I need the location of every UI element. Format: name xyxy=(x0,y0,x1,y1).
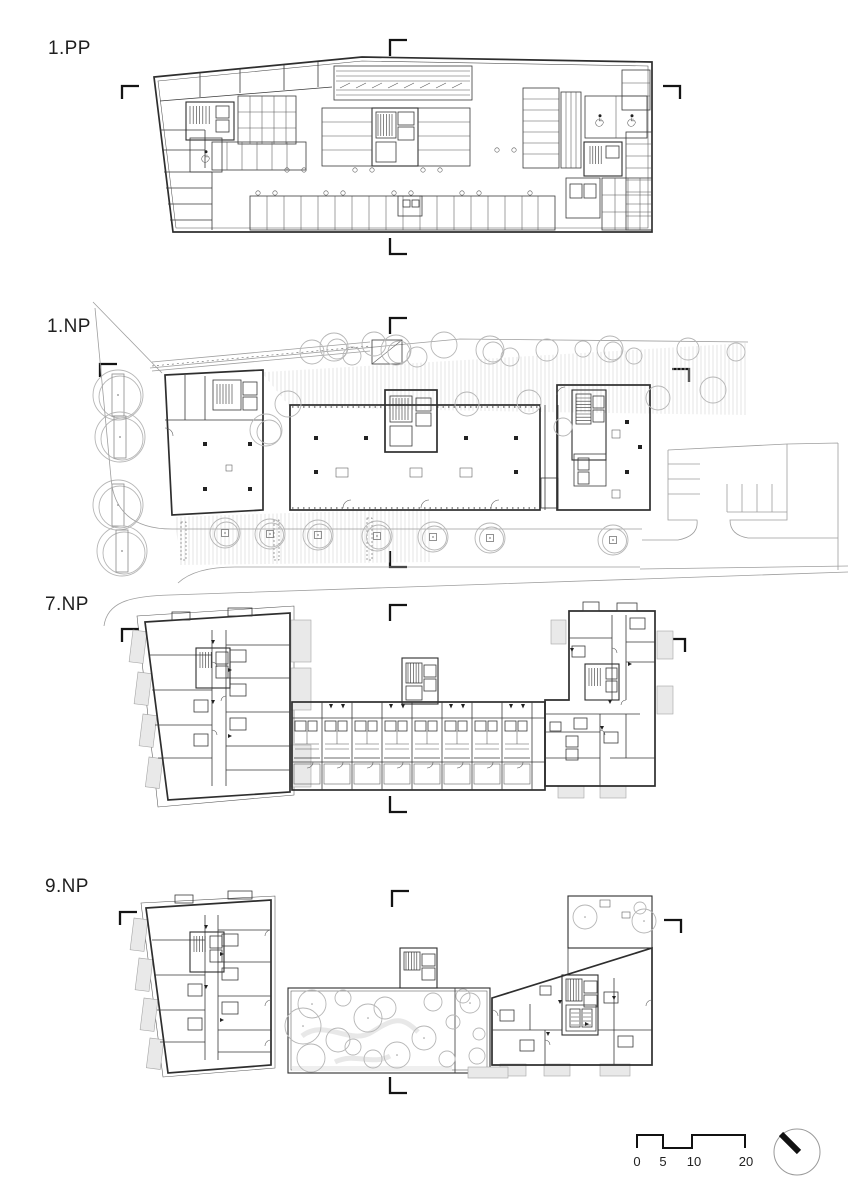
elevator-core xyxy=(566,178,600,218)
stair-core xyxy=(372,108,418,166)
entry-ramp xyxy=(152,342,370,371)
parking-stalls xyxy=(212,142,306,170)
section-marker-right xyxy=(664,920,681,933)
floor-plan-1np xyxy=(93,302,848,626)
plan-sheet: 1.PP 1.NP 7.NP 9.NP xyxy=(0,0,848,1200)
section-marker-bottom xyxy=(390,1077,407,1093)
elevator-icon xyxy=(424,679,436,691)
right-tower xyxy=(468,896,656,1078)
elevator-icon xyxy=(570,184,582,198)
parking-lot xyxy=(640,443,848,570)
north-arrow-icon xyxy=(774,1129,820,1175)
elevator-icon xyxy=(422,968,435,980)
drawing-canvas: 0 5 10 20 xyxy=(0,0,848,1200)
left-tower xyxy=(130,891,275,1077)
tree-row xyxy=(93,370,147,576)
section-marker-top xyxy=(392,891,409,907)
section-marker-top xyxy=(390,605,407,621)
elevator-icon xyxy=(398,112,414,125)
elevator-icon xyxy=(584,184,596,198)
stair-core xyxy=(196,648,230,688)
elevator-icon xyxy=(584,981,597,993)
property-line xyxy=(93,302,162,373)
column-grid xyxy=(256,148,532,195)
stair-core xyxy=(186,102,234,140)
wheelchair-icon xyxy=(596,114,604,126)
elevator-icon xyxy=(210,950,222,962)
elevator-icon xyxy=(566,736,578,747)
scale-bar: 0 5 10 20 xyxy=(633,1135,753,1169)
stair-core xyxy=(400,948,437,988)
elevator-icon xyxy=(216,120,229,132)
elevator-icon xyxy=(606,668,617,679)
elevator-icon xyxy=(424,665,436,677)
elevator-icon xyxy=(606,146,619,158)
wheelchair-icon xyxy=(202,150,210,162)
balcony xyxy=(130,918,164,1069)
floor-plan-9np xyxy=(120,891,681,1093)
elevator-icon xyxy=(416,413,431,426)
balcony xyxy=(129,630,163,788)
section-marker-right xyxy=(663,86,680,99)
elevator-icon xyxy=(422,954,435,966)
street-edge xyxy=(178,567,640,583)
storage-cells xyxy=(523,70,652,230)
wheelchair-icon xyxy=(628,114,636,126)
stair-core xyxy=(562,975,598,1035)
elevator-icon xyxy=(210,936,222,948)
elevator-icon xyxy=(216,106,229,118)
scale-tick-0: 0 xyxy=(633,1154,640,1169)
scale-tick-10: 10 xyxy=(687,1154,701,1169)
garage-ramp xyxy=(334,66,472,100)
left-tower xyxy=(129,606,311,807)
stair-core xyxy=(190,932,224,972)
floor-plan-7np xyxy=(122,602,685,812)
floor-plan-1pp xyxy=(122,40,680,254)
elevator-icon xyxy=(243,382,257,395)
section-marker-top xyxy=(390,318,407,334)
elevator-icon xyxy=(606,681,617,692)
storage-cells xyxy=(238,96,296,144)
elevator-icon xyxy=(398,127,414,140)
stair-core xyxy=(585,664,619,700)
parking-stalls xyxy=(250,196,555,230)
roof-garden xyxy=(285,948,490,1073)
left-building xyxy=(165,370,263,515)
section-marker-bottom xyxy=(390,238,407,254)
elevator-icon xyxy=(578,472,589,484)
stair-core xyxy=(402,658,438,704)
scale-tick-20: 20 xyxy=(739,1154,753,1169)
stair-core xyxy=(584,142,622,176)
scale-tick-5: 5 xyxy=(659,1154,666,1169)
section-marker-left xyxy=(122,86,139,99)
section-marker-bottom xyxy=(390,796,407,812)
section-marker-top xyxy=(390,40,407,56)
middle-wing xyxy=(292,658,545,790)
elevator-icon xyxy=(243,397,257,410)
right-tower xyxy=(545,602,673,798)
roof-terrace xyxy=(568,896,656,948)
